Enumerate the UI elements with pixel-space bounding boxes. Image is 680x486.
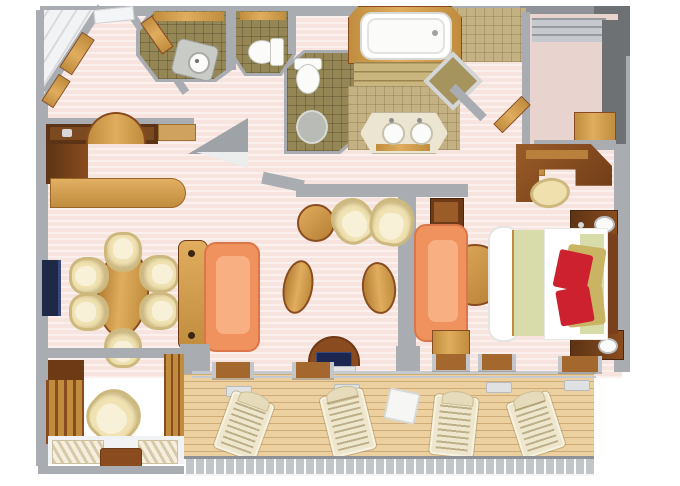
dining-chair-right-1: [139, 255, 179, 293]
bathtub-faucet: [432, 30, 438, 36]
dining-chair-right-2: [139, 292, 179, 330]
vanity-sink-right: [410, 122, 433, 145]
den-curtain-right: [138, 440, 178, 464]
wall-bath-divider-2: [288, 8, 296, 54]
master-wc-toilet-bowl: [296, 64, 320, 94]
wall-closet-left: [522, 12, 530, 144]
bathtub-basin: [367, 18, 445, 54]
round-table: [297, 204, 335, 242]
side-table-upper-top: [434, 202, 458, 222]
guest-bath-sink-basin: [188, 52, 210, 74]
den-outer-rail: [38, 466, 190, 474]
vanity-faucet-right: [417, 118, 422, 123]
door-threshold-4: [478, 354, 516, 370]
door-threshold-5: [558, 356, 602, 372]
dining-chair-left-2: [69, 293, 109, 331]
sofa-wood-peg-2: [188, 332, 195, 339]
master-wc-bidet: [296, 110, 328, 144]
bar-sink-1: [62, 129, 72, 137]
balcony-railing: [184, 456, 594, 476]
side-table-lower: [432, 330, 470, 356]
closet-shelf-band: [532, 18, 606, 42]
door-threshold-2: [292, 362, 334, 378]
vanity-wood-base: [376, 144, 430, 151]
deck-pad-4: [564, 380, 590, 391]
lounge-chair-3: [429, 394, 479, 458]
bar-counter-extension: [158, 124, 196, 141]
den-curtain-left: [52, 440, 104, 464]
deck-pad-3: [486, 382, 512, 393]
vanity-faucet-left: [389, 118, 394, 123]
loveseat-seat: [428, 240, 458, 322]
wall-bath-divider-1: [226, 8, 236, 70]
writing-desk-top: [526, 150, 588, 159]
sofa-wood-peg-1: [188, 250, 195, 257]
floor-plan-canvas: [0, 0, 680, 486]
lamp-bottom: [598, 338, 618, 354]
den-wardrobe-left-top: [48, 360, 84, 382]
guest-wc-trim: [240, 12, 286, 20]
den-window-mullion: [100, 448, 142, 468]
den-wardrobe-left: [46, 380, 84, 444]
dining-chair-top: [104, 232, 142, 272]
bed-pillow-red-2: [555, 285, 595, 326]
guest-bath-trim: [154, 12, 224, 21]
sofa-left-seat: [216, 256, 250, 334]
den-wardrobe-right: [164, 354, 184, 442]
guest-wc-toilet-tank: [270, 38, 284, 66]
bar-lower-counter: [50, 178, 186, 208]
deck-table: [383, 387, 421, 425]
dining-chair-left-1: [69, 257, 109, 295]
door-threshold-3: [432, 354, 470, 370]
guest-bath-drain: [195, 59, 199, 63]
wall-living-bath: [296, 184, 468, 197]
vanity-sink-left: [382, 122, 405, 145]
door-threshold-1: [212, 362, 254, 378]
tv: [42, 260, 61, 316]
